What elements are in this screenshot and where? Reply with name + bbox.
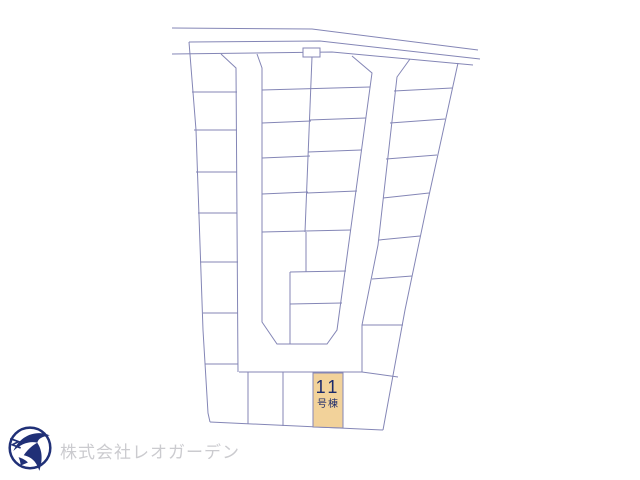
right-boundary (383, 63, 458, 430)
company-name: 株式会社レオガーデン (60, 438, 240, 463)
left-boundary (189, 42, 210, 422)
footer-brand: 株式会社レオガーデン (6, 424, 240, 476)
block-top-notch (303, 48, 320, 57)
central-block-outline (257, 54, 372, 344)
top-road-outer-line (172, 28, 478, 50)
site-plan-page: 11 号棟 株式会社レオガーデン (0, 0, 640, 480)
lot-11-highlight (313, 373, 343, 428)
site-plan-map (0, 0, 640, 480)
top-road-inner-line (172, 52, 473, 65)
bird-logo-icon (6, 425, 54, 475)
top-road-middle-line (189, 41, 480, 59)
